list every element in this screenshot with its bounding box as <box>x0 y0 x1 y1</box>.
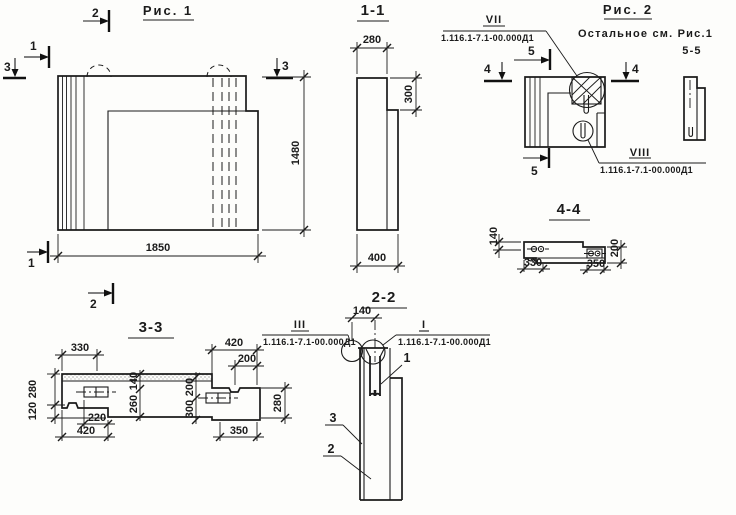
svg-text:420: 420 <box>225 337 243 349</box>
svg-text:300: 300 <box>403 85 415 103</box>
svg-text:1.116.1-7.1-00.000Д1: 1.116.1-7.1-00.000Д1 <box>600 165 693 175</box>
svg-text:3: 3 <box>282 59 289 73</box>
svg-text:200: 200 <box>609 239 621 257</box>
sec11-dim-400: 400 <box>350 234 405 273</box>
svg-text:400: 400 <box>368 252 386 264</box>
svg-text:1480: 1480 <box>290 141 302 165</box>
svg-text:5: 5 <box>528 44 535 58</box>
embedded-detail-hatched <box>572 77 601 104</box>
svg-text:3: 3 <box>4 60 11 74</box>
part-label-3: 3 <box>325 411 362 444</box>
svg-text:300: 300 <box>184 400 196 418</box>
sec11-profile <box>357 78 398 230</box>
svg-text:1.116.1-7.1-00.000Д1: 1.116.1-7.1-00.000Д1 <box>398 337 491 347</box>
section-4-4: 4-4 140 200 330 <box>488 201 627 274</box>
section-marker-4-left: 4 <box>484 62 512 81</box>
sec33-dim-330: 330 <box>55 342 104 371</box>
svg-text:330: 330 <box>524 257 542 269</box>
sec33-embedded-plate-right <box>198 393 238 403</box>
section-marker-3-right: 3 <box>266 58 293 78</box>
part-label-1: 1 <box>381 351 411 384</box>
svg-text:120: 120 <box>27 402 39 420</box>
sec33-dim-350: 350 <box>213 422 264 441</box>
sec33-dim-220: 220 <box>77 400 115 428</box>
section-marker-5-bottom: 5 <box>523 148 549 178</box>
fig2-panel-outline <box>525 73 605 148</box>
sec44-dim-330: 330 <box>517 257 550 273</box>
fig2-view: Рис. 2 Остальное см. Рис.1 5-5 VII 1.116… <box>441 2 713 178</box>
slot-lower <box>581 123 585 138</box>
svg-text:280: 280 <box>363 34 381 46</box>
section-marker-3-left: 3 <box>3 58 26 78</box>
svg-text:280: 280 <box>272 394 284 412</box>
sec33-dim-280-right: 280 <box>261 382 292 424</box>
fig2-title: Рис. 2 <box>603 2 653 17</box>
svg-text:140: 140 <box>128 372 140 390</box>
sec22-title: 2-2 <box>372 289 397 306</box>
section-1-1: 1-1 280 300 400 <box>350 2 422 273</box>
sec11-dim-280: 280 <box>350 34 394 74</box>
svg-text:1.116.1-7.1-00.000Д1: 1.116.1-7.1-00.000Д1 <box>263 337 356 347</box>
svg-text:2: 2 <box>90 297 97 311</box>
svg-text:I: I <box>422 319 426 331</box>
svg-text:280: 280 <box>27 380 39 398</box>
svg-text:350: 350 <box>587 258 605 270</box>
svg-text:350: 350 <box>230 425 248 437</box>
svg-text:4: 4 <box>632 62 639 76</box>
svg-text:VIII: VIII <box>630 147 651 159</box>
svg-text:III: III <box>294 319 306 331</box>
svg-text:140: 140 <box>488 227 500 245</box>
svg-text:420: 420 <box>77 425 95 437</box>
section-3-3: 3-3 330 420 <box>27 319 292 441</box>
section-5-5-view <box>684 77 705 140</box>
drawing-sheet: Рис. 1 2 1 3 3 1 2 <box>0 0 736 515</box>
svg-text:260: 260 <box>128 395 140 413</box>
svg-text:5: 5 <box>531 164 538 178</box>
sec44-dim-200: 200 <box>607 239 627 269</box>
fig2-note: Остальное см. Рис.1 <box>578 28 713 40</box>
svg-text:330: 330 <box>71 342 89 354</box>
section-marker-2-bottom: 2 <box>88 283 113 311</box>
fig1-panel-outline <box>58 65 258 230</box>
sec44-dim-350: 350 <box>580 258 611 274</box>
section-2-2: 2-2 140 III 1.116.1-7.1-00.000Д1 I 1.116… <box>262 289 491 500</box>
sec33-dim-200-top: 200 <box>228 353 264 385</box>
detail-circle-i <box>361 340 385 364</box>
svg-text:VII: VII <box>486 14 502 26</box>
svg-text:3: 3 <box>330 411 337 425</box>
fig1-dim-1850: 1850 <box>50 234 266 263</box>
svg-text:2: 2 <box>92 6 99 20</box>
callout-iii: III 1.116.1-7.1-00.000Д1 <box>262 319 356 347</box>
sec44-title: 4-4 <box>557 201 582 218</box>
sec33-embedded-plate-left <box>76 387 116 397</box>
svg-text:140: 140 <box>353 305 371 317</box>
sec44-anchors-right <box>584 249 606 258</box>
sec44-dim-140: 140 <box>488 227 521 258</box>
svg-text:1.116.1-7.1-00.000Д1: 1.116.1-7.1-00.000Д1 <box>441 33 534 43</box>
section-marker-4-right: 4 <box>611 62 639 81</box>
svg-text:1: 1 <box>404 351 411 365</box>
fig1-view: Рис. 1 2 1 3 3 1 2 <box>3 3 311 311</box>
section-marker-1-upper-left: 1 <box>24 39 49 68</box>
callout-i: I 1.116.1-7.1-00.000Д1 <box>383 319 491 347</box>
svg-text:4: 4 <box>484 62 491 76</box>
sec11-title: 1-1 <box>361 2 386 19</box>
section-marker-1-bottom-left: 1 <box>27 241 48 270</box>
sec33-title: 3-3 <box>139 319 164 336</box>
callout-vii: VII 1.116.1-7.1-00.000Д1 <box>441 14 577 76</box>
svg-text:220: 220 <box>88 412 106 424</box>
svg-text:2: 2 <box>328 442 335 456</box>
svg-text:1: 1 <box>28 256 35 270</box>
section-marker-5-top: 5 <box>514 44 550 70</box>
drawing-canvas: Рис. 1 2 1 3 3 1 2 <box>0 0 736 515</box>
svg-text:1850: 1850 <box>146 242 170 254</box>
fig1-dim-1480: 1480 <box>262 70 311 237</box>
fig1-title: Рис. 1 <box>143 3 193 18</box>
svg-text:1: 1 <box>30 39 37 53</box>
svg-text:200: 200 <box>184 378 196 396</box>
fig2-note-section: 5-5 <box>682 45 702 57</box>
section-marker-2-top: 2 <box>83 6 109 32</box>
svg-text:200: 200 <box>238 353 256 365</box>
sec44-anchors-left <box>527 246 549 251</box>
